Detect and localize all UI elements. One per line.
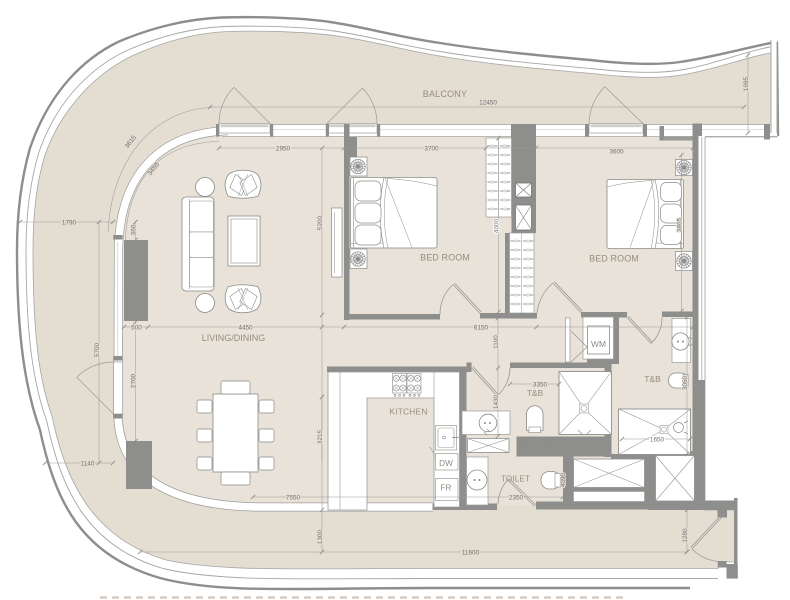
svg-text:BALCONY: BALCONY bbox=[423, 89, 467, 99]
svg-text:FR: FR bbox=[441, 484, 452, 493]
svg-text:3215: 3215 bbox=[317, 429, 324, 444]
svg-text:12450: 12450 bbox=[479, 100, 497, 107]
svg-text:1300: 1300 bbox=[317, 529, 324, 544]
svg-text:1430: 1430 bbox=[493, 394, 500, 409]
svg-text:4450: 4450 bbox=[238, 325, 253, 332]
svg-text:3060: 3060 bbox=[682, 375, 689, 390]
svg-text:5700: 5700 bbox=[94, 342, 101, 357]
svg-text:500: 500 bbox=[131, 325, 142, 332]
svg-text:2700: 2700 bbox=[131, 373, 138, 388]
svg-text:4090: 4090 bbox=[560, 472, 567, 487]
svg-text:7550: 7550 bbox=[286, 495, 301, 502]
svg-text:2950: 2950 bbox=[276, 146, 291, 153]
svg-text:BED ROOM: BED ROOM bbox=[420, 253, 470, 263]
svg-text:1280: 1280 bbox=[682, 528, 689, 543]
svg-text:T&B: T&B bbox=[644, 374, 661, 384]
svg-text:2350: 2350 bbox=[509, 495, 524, 502]
svg-text:360: 360 bbox=[131, 224, 138, 235]
svg-text:4000: 4000 bbox=[494, 218, 501, 233]
svg-text:KITCHEN: KITCHEN bbox=[389, 407, 427, 417]
svg-text:6150: 6150 bbox=[474, 325, 489, 332]
svg-text:1100: 1100 bbox=[493, 335, 500, 349]
svg-text:3700: 3700 bbox=[424, 146, 439, 153]
svg-text:1790: 1790 bbox=[62, 220, 77, 227]
svg-text:3865: 3865 bbox=[677, 217, 684, 232]
svg-text:11600: 11600 bbox=[462, 550, 480, 557]
svg-text:TOILET: TOILET bbox=[501, 475, 530, 484]
svg-text:WM: WM bbox=[591, 339, 606, 349]
svg-text:1140: 1140 bbox=[81, 461, 95, 468]
svg-text:3350: 3350 bbox=[533, 382, 548, 389]
svg-text:3600: 3600 bbox=[609, 149, 624, 156]
svg-text:BED ROOM: BED ROOM bbox=[589, 254, 639, 264]
svg-text:T&B: T&B bbox=[527, 388, 544, 398]
svg-text:LIVING/DINING: LIVING/DINING bbox=[202, 333, 266, 343]
svg-text:DW: DW bbox=[439, 459, 453, 468]
svg-text:1695: 1695 bbox=[743, 76, 750, 91]
svg-text:1650: 1650 bbox=[650, 437, 665, 444]
svg-text:5200: 5200 bbox=[317, 215, 324, 230]
